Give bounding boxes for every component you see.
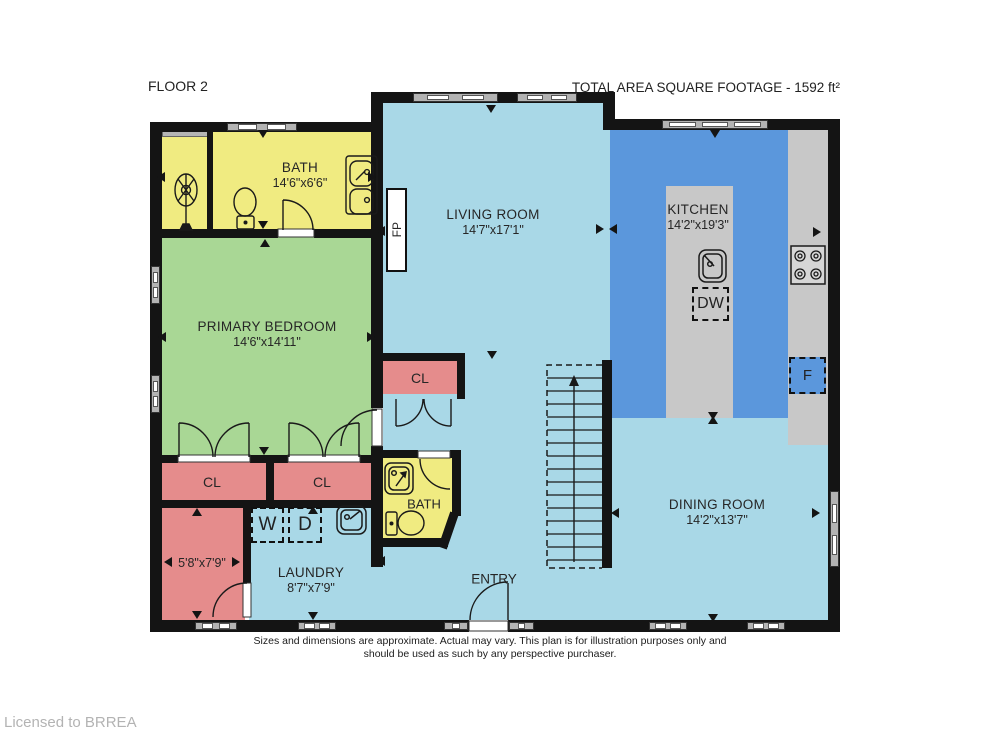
wall-closet-hall-right	[457, 353, 465, 399]
wall-shower-divider	[207, 132, 213, 229]
closet-hall-label: CL	[411, 370, 429, 386]
fireplace: FP	[386, 188, 407, 272]
bath-small-label: BATH	[407, 497, 441, 512]
window	[830, 491, 839, 567]
window	[662, 120, 768, 129]
disclaimer-line2: should be used as such by any perspectiv…	[140, 648, 840, 661]
window	[747, 622, 785, 630]
kitchen-label: KITCHEN 14'2"x19'3"	[667, 202, 729, 233]
laundry-label: LAUNDRY 8'7"x7'9"	[278, 565, 344, 596]
dining-room-label: DINING ROOM 14'2"x13'7"	[669, 497, 765, 528]
closet-left-label: CL	[203, 474, 221, 490]
wall-bath-small-bottom	[378, 538, 448, 547]
window	[195, 622, 237, 630]
dryer-label: D	[298, 514, 312, 536]
window	[413, 93, 498, 102]
wall-stairs-right	[602, 360, 612, 568]
window	[444, 622, 468, 630]
wall-main-vert-a	[371, 122, 383, 408]
window	[151, 266, 160, 304]
disclaimer-line1: Sizes and dimensions are approximate. Ac…	[140, 635, 840, 648]
fireplace-label: FP	[390, 222, 404, 237]
window	[649, 622, 687, 630]
window	[298, 622, 336, 630]
fridge-label: F	[803, 367, 812, 384]
wall-bath-bottom-b	[314, 229, 383, 238]
bath-main-label: BATH 14'6"x6'6"	[273, 160, 328, 191]
window	[517, 93, 577, 102]
wall-closet-divider	[266, 461, 274, 501]
washer-box: W	[251, 507, 284, 543]
living-room-area	[383, 100, 603, 134]
dryer-box: D	[288, 507, 322, 543]
window	[227, 123, 297, 131]
window	[151, 375, 160, 413]
disclaimer: Sizes and dimensions are approximate. Ac…	[140, 635, 840, 661]
wall-closet-hall-top	[383, 353, 465, 361]
window	[509, 622, 534, 630]
living-room-label: LIVING ROOM 14'7"x17'1"	[446, 207, 539, 238]
dishwasher-label: DW	[697, 295, 724, 313]
entry-label: ENTRY	[471, 572, 517, 587]
bedroom-label: PRIMARY BEDROOM 14'6"x14'11"	[197, 319, 336, 350]
wall-bath-small-top-a	[380, 450, 418, 458]
bath-main-area	[160, 130, 373, 231]
wall-storage-right	[243, 508, 251, 583]
dishwasher-box: DW	[692, 287, 729, 321]
floor-plan: FLOOR 2 TOTAL AREA SQUARE FOOTAGE - 1592…	[0, 0, 1000, 735]
closet-right-label: CL	[313, 474, 331, 490]
wall-bath-bottom-a	[150, 229, 278, 238]
wall-bath-small-right	[452, 450, 461, 516]
floor-label: FLOOR 2	[148, 78, 208, 94]
wall-bedroom-bottom-a	[150, 455, 178, 463]
fridge-box: F	[789, 357, 826, 394]
storage-dims-label: 5'8"x7'9"	[178, 556, 226, 570]
license-text: Licensed to BRREA	[4, 714, 137, 731]
washer-label: W	[259, 514, 277, 536]
kitchen-counter	[788, 130, 828, 445]
